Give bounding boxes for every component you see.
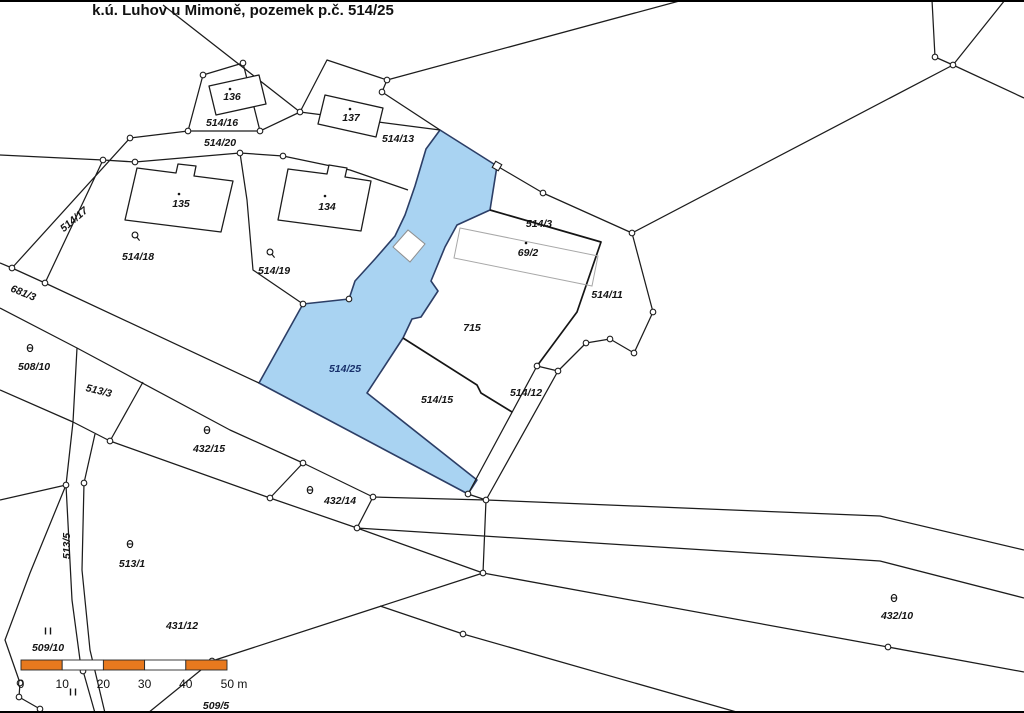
parcel-label-514-15: 514/15 xyxy=(421,394,453,406)
parcel-label-431-12: 431/12 xyxy=(165,620,198,632)
vertex-markers xyxy=(9,54,956,712)
scale-bar-tick-label: 0 xyxy=(18,677,25,691)
parcel-label-69-2: 69/2 xyxy=(518,247,539,259)
top-border xyxy=(0,0,1024,2)
parcel-label-514-16: 514/16 xyxy=(206,117,238,129)
scale-bar-segment xyxy=(186,660,227,670)
theta-symbol-icon xyxy=(27,344,32,351)
scale-bar-segment xyxy=(21,660,62,670)
theta-symbol-icon xyxy=(127,540,132,547)
bars-symbol-icon xyxy=(71,689,76,696)
parcel-label-432-15: 432/15 xyxy=(192,443,225,455)
scale-bar-tick-label: 30 xyxy=(138,677,152,691)
scale-bar-tick-label: 10 xyxy=(56,677,70,691)
ring-symbol-icon xyxy=(132,232,140,241)
parcel-boundary-lines xyxy=(0,0,1024,713)
parcel-label-137: 137 xyxy=(342,112,361,124)
scale-bar-tick-label: 20 xyxy=(97,677,111,691)
parcel-label-513-3: 513/3 xyxy=(85,382,114,400)
theta-symbol-icon xyxy=(307,486,312,493)
parcel-label-513-5: 513/5 xyxy=(61,533,73,559)
scale-bar-tick-label: 40 xyxy=(179,677,193,691)
parcel-label-432-14: 432/14 xyxy=(323,495,356,507)
scale-bar: 01020304050 m xyxy=(18,660,248,691)
parcel-label-514-18: 514/18 xyxy=(122,251,154,263)
scale-bar-tick-label: 50 m xyxy=(221,677,248,691)
parcel-label-135: 135 xyxy=(172,198,190,210)
parcel-label-514-11: 514/11 xyxy=(591,289,622,301)
parcel-label-134: 134 xyxy=(318,201,336,213)
scale-bar-segment xyxy=(103,660,144,670)
bars-symbol-icon xyxy=(46,628,51,635)
scale-bar-segment xyxy=(62,660,103,670)
parcel-label-509-10: 509/10 xyxy=(32,642,64,654)
parcel-label-432-10: 432/10 xyxy=(880,610,913,622)
parcel-label-509-5: 509/5 xyxy=(203,700,229,712)
ring-symbol-icon xyxy=(267,249,275,258)
parcel-label-514-3: 514/3 xyxy=(526,218,552,230)
scale-bar-segment xyxy=(145,660,186,670)
theta-symbol-icon xyxy=(891,594,896,601)
parcel-label-508-10: 508/10 xyxy=(18,361,50,373)
theta-symbol-icon xyxy=(204,426,209,433)
landuse-symbols xyxy=(27,232,896,695)
cadastral-map[interactable]: 136514/16514/20137514/13135134514/17514/… xyxy=(0,0,1024,713)
parcel-label-681-3: 681/3 xyxy=(9,283,38,304)
parcel-label-136: 136 xyxy=(223,91,241,103)
parcel-label-514-13: 514/13 xyxy=(382,133,414,145)
parcel-label-715: 715 xyxy=(463,322,481,334)
cadastral-map-viewport: 136514/16514/20137514/13135134514/17514/… xyxy=(0,0,1024,713)
parcel-label-513-1: 513/1 xyxy=(119,558,145,570)
parcel-label-514-19: 514/19 xyxy=(258,265,290,277)
parcel-label-514-25: 514/25 xyxy=(329,363,361,375)
parcel-label-514-17: 514/17 xyxy=(58,204,91,235)
map-title: k.ú. Luhov u Mimoně, pozemek p.č. 514/25 xyxy=(92,2,394,19)
parcel-label-514-20: 514/20 xyxy=(204,137,236,149)
parcel-label-514-12: 514/12 xyxy=(510,387,542,399)
